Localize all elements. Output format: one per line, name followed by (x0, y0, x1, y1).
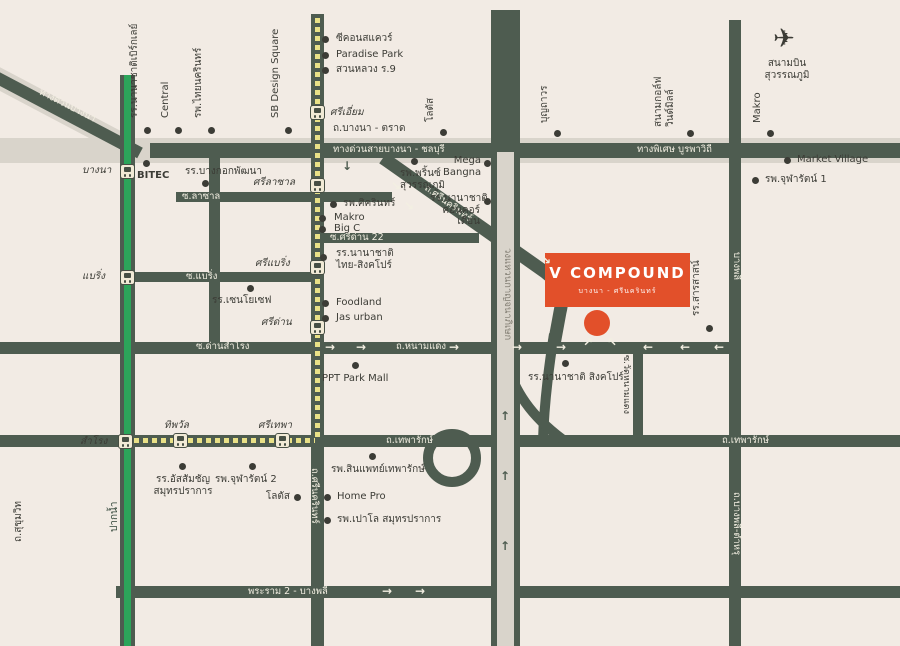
road-label-srinakarin-south: ถ.ศรีนครินทร์ (308, 468, 320, 524)
place-berkeley-dot (144, 127, 151, 134)
place-big-c-dot (319, 226, 326, 233)
place-windmill-golf-dot (687, 130, 694, 137)
arrow-up-icon: ↑ (500, 410, 510, 422)
road-label-rama2-bangphli: พระราม 2 - บางพลี (248, 586, 328, 598)
place-mega-bangna: Mega Bangna (443, 155, 481, 178)
place-sb-design-dot (285, 127, 292, 134)
road-label-dan-samrong: ซ.ด่านสำโรง (196, 341, 249, 353)
station-si-thepha (275, 433, 290, 448)
road-ring-elevated (497, 152, 514, 646)
arrow-down-right-icon: ↘ (391, 180, 401, 192)
place-thai-singapore: รร.นานาชาติ ไทย-สิงคโปร์ (336, 248, 394, 271)
place-thainakarin-dot (208, 127, 215, 134)
place-synphaet-dot (369, 453, 376, 460)
place-assumption-dot (179, 463, 186, 470)
place-chularat1-dot (752, 177, 759, 184)
place-lotus-bottom: โลตัส (252, 491, 290, 503)
place-central: Central (160, 82, 172, 118)
arrow-down-right-icon: ↘ (404, 200, 414, 212)
place-seacon-dot (322, 36, 329, 43)
arrow-up-icon: ↑ (500, 540, 510, 552)
road-label-thepharak-east: ถ.เทพารักษ์ (722, 435, 769, 447)
place-makro-top: Makro (752, 92, 764, 123)
place-foodland-dot (322, 300, 329, 307)
station-si-thepha-label: ศรีเทพา (258, 420, 292, 432)
place-bitec-dot (143, 160, 150, 167)
place-sikarin-dot (330, 201, 337, 208)
road-label-thepharak-west: ถ.เทพารักษ์ (386, 435, 433, 447)
station-bearing (120, 270, 135, 285)
direction-label-paknam: ปากน้ำ (109, 502, 121, 532)
road-label-lasalle: ซ.ลาซาล (182, 191, 220, 203)
place-home-pro-dot (324, 494, 331, 501)
station-bangna (120, 164, 135, 179)
project-location-marker (584, 310, 610, 336)
place-singapore-school: รร.นานาชาติ สิงคโปร์ (528, 372, 624, 384)
station-si-bearing-label: ศรีแบริ่ง (255, 258, 290, 270)
project-logo-subtitle: บางนา - ศรีนครินทร์ (545, 286, 690, 297)
place-suan-luang-dot (322, 67, 329, 74)
arrow-up-icon: ↑ (500, 470, 510, 482)
arrow-right-icon: → (356, 341, 366, 353)
interchange-loop (428, 434, 476, 482)
place-makro: Makro (334, 212, 365, 224)
road-label-bangna-chonburi: ทางด่วนสายบางนา - ชลบุรี (333, 144, 445, 156)
road-label-sukhumvit: ถ.สุขุมวิท (13, 501, 25, 542)
place-sb-design: SB Design Square (270, 29, 282, 118)
arrow-right-icon: → (382, 585, 392, 597)
station-si-bearing (310, 260, 325, 275)
place-paradise-park-dot (322, 52, 329, 59)
place-sarasas-dot (706, 325, 713, 332)
place-berkeley: รร.นานาชาติเบิร์กเลย์ (129, 24, 141, 118)
place-prince-hospital-dot (411, 158, 418, 165)
place-chularat1: รพ.จุฬารัตน์ 1 (765, 174, 827, 186)
station-si-iam (310, 105, 325, 120)
place-paolo-dot (324, 517, 331, 524)
place-lotus-bottom-dot (294, 494, 301, 501)
place-sarasas: รร.สารสาสน์ (691, 260, 703, 316)
road-label-ring: วงแหวนกาญจนาภิเษก (501, 248, 513, 340)
place-lotus-top: โลตัส (425, 98, 437, 122)
station-bangna-label: บางนา (82, 165, 111, 177)
place-makro-top-dot (767, 130, 774, 137)
place-synphaet: รพ.สินแพทย์เทพารักษ์ (331, 464, 425, 476)
place-thainakarin: รพ.ไทยนครินทร์ (193, 48, 205, 118)
place-foodland: Foodland (336, 297, 382, 309)
arrow-down-icon: ↓ (342, 160, 352, 172)
place-suan-luang: สวนหลวง ร.9 (336, 64, 396, 76)
project-logo-title: V COMPOUND (545, 264, 690, 282)
place-bangkok-patana: รร.บางกอกพัฒนา (185, 166, 262, 178)
place-chularat2: รพ.จุฬารัตน์ 2 (215, 474, 277, 486)
arrow-right-icon: → (556, 341, 566, 353)
place-market-village: Market Village (797, 154, 868, 166)
project-logo: V COMPOUND บางนา - ศรีนครินทร์ (545, 253, 690, 307)
place-lotus-top-dot (440, 129, 447, 136)
station-si-dan (310, 320, 325, 335)
arrow-up-right-icon: ↗ (583, 336, 593, 348)
arrow-right-icon: → (415, 585, 425, 597)
place-jas-urban-dot (322, 315, 329, 322)
place-home-pro: Home Pro (337, 491, 386, 503)
station-bearing-label: แบริ่ง (82, 271, 105, 283)
place-boonthavorn: บุญถาวร (539, 85, 551, 123)
place-chularat2-dot (249, 463, 256, 470)
station-si-iam-label: ศรีเอี่ยม (330, 107, 364, 119)
place-big-c: Big C (334, 223, 360, 235)
arrow-left-icon: ← (680, 341, 690, 353)
station-thipawan-label: ทิพวัล (164, 420, 189, 432)
arrow-down-right-icon: ↘ (541, 254, 551, 266)
place-makro-dot (319, 215, 326, 222)
place-concordian-dot (484, 198, 491, 205)
road-label-wat-namdaeng: ซ.วัดหนามแดง (620, 355, 632, 414)
place-st-joseph-dot (247, 285, 254, 292)
road-label-bangphli-tamru: ถ.บางพลี-ตำหรุ (730, 492, 742, 555)
road-label-bangna-trad: ถ.บางนา - ตราด (333, 123, 405, 135)
bts-green-line (124, 75, 131, 646)
place-prince-hospital: รพ.พริ้นซ์ สุวรรณภูมิ (400, 168, 445, 191)
arrow-left-icon: ← (714, 341, 724, 353)
arrow-up-left-icon: ↖ (607, 336, 617, 348)
place-st-joseph: รร.เซนโยเซฟ (212, 295, 271, 307)
place-bitec: BITEC (137, 170, 169, 182)
place-paradise-park: Paradise Park (336, 49, 403, 61)
place-ppt-park-mall: PPT Park Mall (322, 373, 388, 385)
place-ppt-park-mall-dot (352, 362, 359, 369)
place-boonthavorn-dot (554, 130, 561, 137)
place-jas-urban: Jas urban (336, 312, 383, 324)
station-samrong (118, 434, 133, 449)
station-thipawan (173, 433, 188, 448)
place-concordian: รร.นานาชาติ คอนคอร์เดียน (430, 193, 480, 228)
arrow-right-icon: → (325, 341, 335, 353)
road-label-burapha-withi: ทางพิเศษ บูรพาวิถี (637, 144, 712, 156)
station-si-lasalle (310, 178, 325, 193)
station-si-dan-label: ศรีด่าน (261, 317, 292, 329)
map-canvas: ทางด่วนสายบางนา - ชลบุรี ทางพิเศษ บูรพาว… (0, 0, 900, 646)
airplane-icon: ✈ (773, 26, 795, 52)
arrow-right-icon: → (512, 341, 522, 353)
place-central-dot (175, 127, 182, 134)
place-market-village-dot (784, 157, 791, 164)
place-bangkok-patana-dot (202, 180, 209, 187)
road-label-bearing: ซ.แบริ่ง (186, 271, 217, 283)
place-seacon: ซีคอนสแควร์ (336, 33, 393, 45)
arrow-left-icon: ← (643, 341, 653, 353)
place-airport: สนามบิน สุวรรณภูมิ (752, 58, 822, 81)
station-samrong-label: สำโรง (80, 436, 107, 448)
place-thai-singapore-dot (320, 254, 327, 261)
place-paolo: รพ.เปาโล สมุทรปราการ (337, 514, 441, 526)
road-label-bangphli-direction: บางพลี (730, 252, 742, 280)
place-singapore-school-dot (562, 360, 569, 367)
place-mega-bangna-dot (484, 160, 491, 167)
station-si-lasalle-label: ศรีลาซาล (253, 177, 295, 189)
place-sikarin: รพ.ศิครินทร์ (343, 198, 395, 210)
arrow-right-icon: → (449, 341, 459, 353)
road-label-namdaeng: ถ.หนามแดง (396, 341, 446, 353)
place-windmill-golf: สนามกอล์ฟ วินด์มิลล์ (653, 77, 677, 127)
